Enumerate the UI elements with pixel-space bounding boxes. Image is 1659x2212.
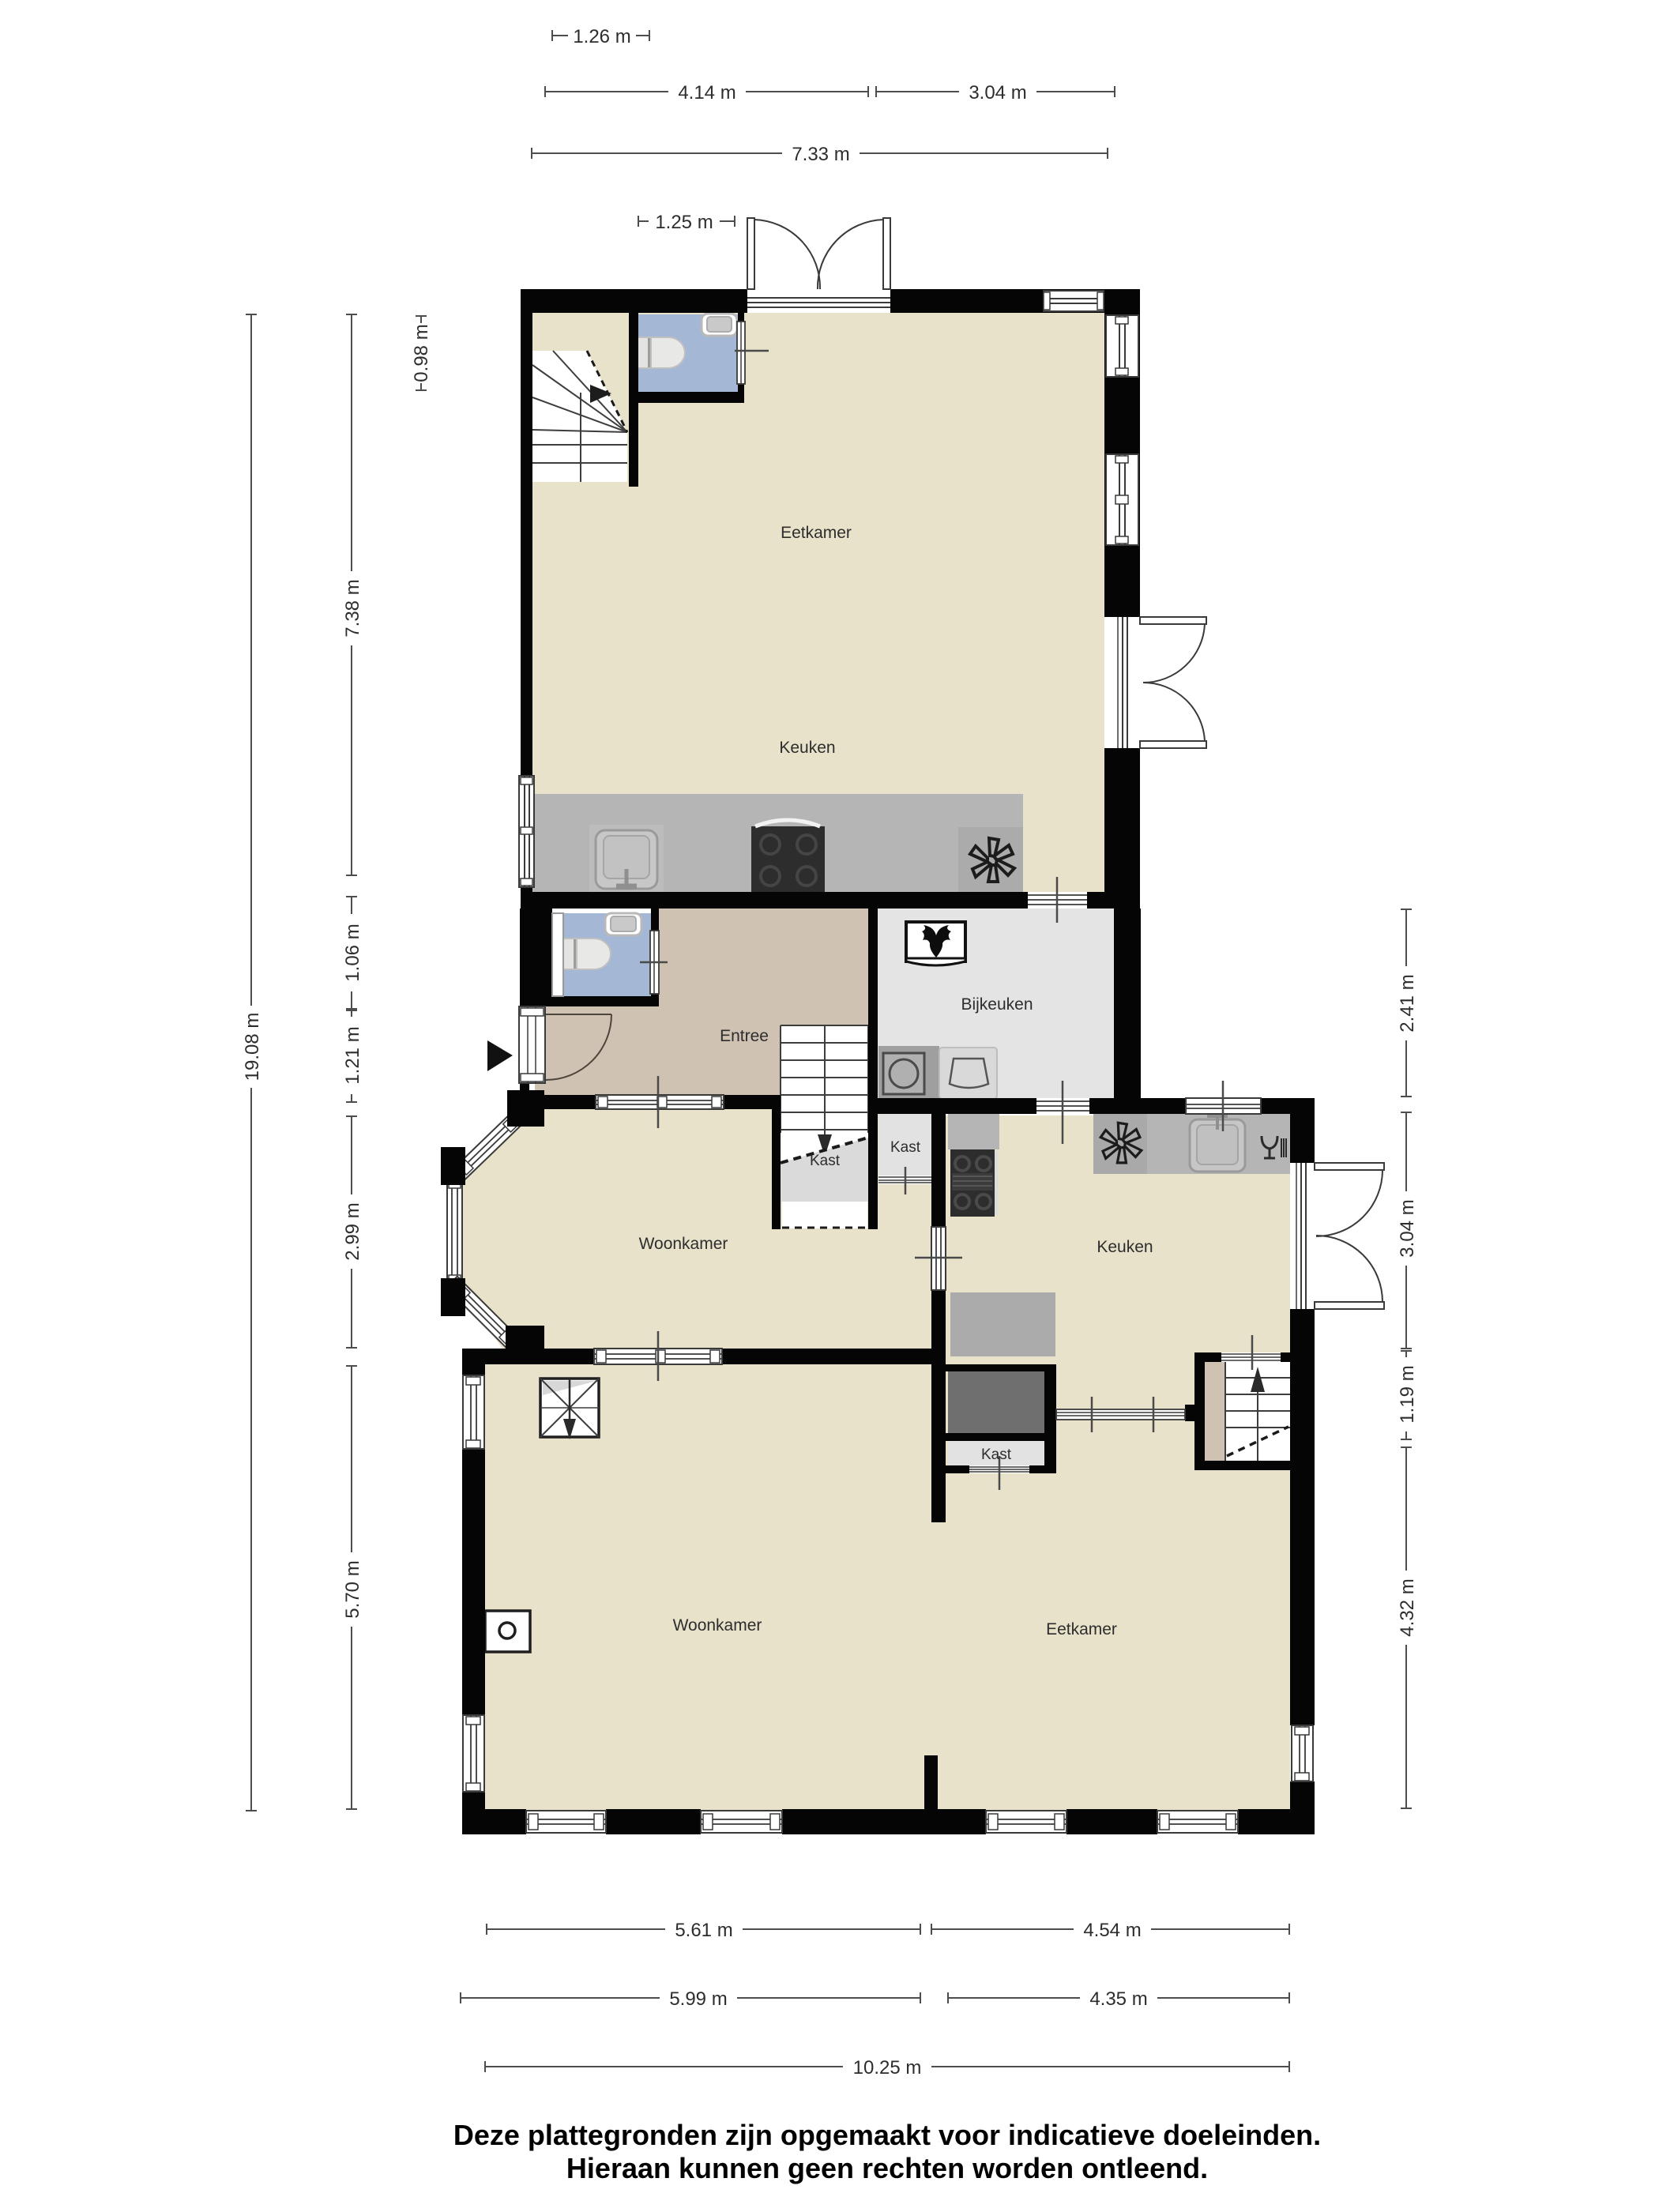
svg-text:0.98 m: 0.98 m [411, 324, 432, 382]
svg-text:Eetkamer: Eetkamer [781, 524, 852, 542]
svg-text:5.99 m: 5.99 m [669, 1988, 727, 2010]
svg-text:2.99 m: 2.99 m [342, 1202, 363, 1260]
svg-text:2.41 m: 2.41 m [1397, 974, 1418, 1032]
svg-text:4.14 m: 4.14 m [678, 82, 735, 103]
svg-text:4.54 m: 4.54 m [1083, 1920, 1141, 1941]
svg-text:4.35 m: 4.35 m [1089, 1988, 1147, 2010]
svg-text:Bijkeuken: Bijkeuken [961, 995, 1033, 1014]
svg-text:3.04 m: 3.04 m [969, 82, 1026, 103]
svg-text:Entree: Entree [720, 1027, 769, 1045]
svg-text:Woonkamer: Woonkamer [639, 1235, 728, 1253]
svg-text:Kast: Kast [981, 1446, 1012, 1463]
svg-text:5.70 m: 5.70 m [342, 1560, 363, 1618]
svg-text:Woonkamer: Woonkamer [673, 1616, 762, 1635]
svg-text:10.25 m: 10.25 m [853, 2057, 922, 2078]
svg-text:1.21 m: 1.21 m [342, 1026, 363, 1084]
svg-text:7.38 m: 7.38 m [342, 579, 363, 637]
svg-text:Kast: Kast [890, 1139, 921, 1156]
svg-text:Deze plattegronden zijn opgema: Deze plattegronden zijn opgemaakt voor i… [453, 2119, 1321, 2151]
svg-text:Kast: Kast [810, 1153, 841, 1169]
svg-text:Keuken: Keuken [1097, 1238, 1153, 1256]
svg-text:4.32 m: 4.32 m [1397, 1578, 1418, 1636]
svg-text:3.04 m: 3.04 m [1397, 1199, 1418, 1257]
svg-text:Hieraan kunnen geen rechten wo: Hieraan kunnen geen rechten worden ontle… [566, 2152, 1208, 2184]
svg-text:1.06 m: 1.06 m [342, 924, 363, 981]
svg-text:1.19 m: 1.19 m [1397, 1365, 1418, 1423]
svg-text:19.08 m: 19.08 m [242, 1013, 263, 1082]
svg-text:1.26 m: 1.26 m [573, 26, 630, 47]
svg-text:Keuken: Keuken [779, 739, 835, 757]
svg-text:5.61 m: 5.61 m [675, 1920, 732, 1941]
svg-text:Eetkamer: Eetkamer [1046, 1620, 1117, 1638]
svg-text:1.25 m: 1.25 m [655, 212, 713, 233]
svg-text:7.33 m: 7.33 m [792, 144, 849, 165]
